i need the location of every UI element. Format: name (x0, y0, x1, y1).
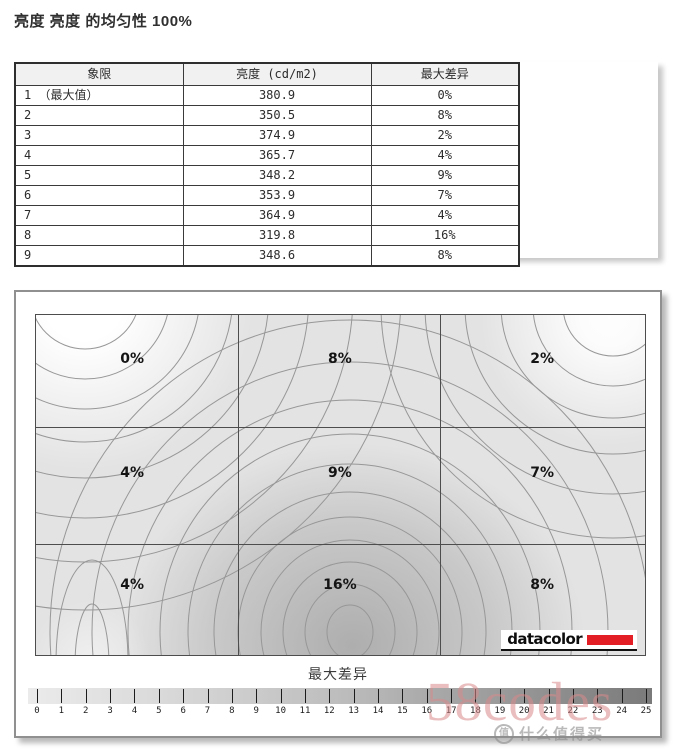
quadrant-cell: 9 (15, 246, 183, 267)
colorbar-tick-label: 24 (616, 706, 627, 716)
colorbar-tick-label: 16 (421, 706, 432, 716)
cell-value-label: 0% (120, 351, 144, 367)
table-row: 5348.29% (15, 166, 519, 186)
colorbar-tick-label: 7 (205, 706, 210, 716)
colorbar-tick (500, 689, 501, 703)
table-panel: 象限亮度 (cd/m2)最大差异 1 （最大值）380.90%2350.58%3… (14, 62, 658, 258)
quadrant-cell: 8 (15, 226, 183, 246)
colorbar-tick (475, 689, 476, 703)
table-row: 3374.92% (15, 126, 519, 146)
colorbar-tick-label: 3 (107, 706, 112, 716)
colorbar-tick (354, 689, 355, 703)
colorbar-tick (597, 689, 598, 703)
difference-cell: 16% (371, 226, 519, 246)
colorbar-tick (183, 689, 184, 703)
cell-value-label: 2% (530, 351, 554, 367)
colorbar-tick-label: 0 (34, 706, 39, 716)
quadrant-cell: 6 (15, 186, 183, 206)
colorbar-tick-label: 4 (132, 706, 137, 716)
colorbar-tick (110, 689, 111, 703)
colorbar-labels: 0123456789101112131415161718192021222324… (28, 706, 652, 720)
datacolor-logo-red-bar (587, 635, 633, 645)
colorbar-tick (61, 689, 62, 703)
table-row: 8319.816% (15, 226, 519, 246)
column-header: 象限 (15, 63, 183, 86)
luminance-cell: 380.9 (183, 86, 371, 106)
colorbar-tick-label: 1 (59, 706, 64, 716)
colorbar-tick (402, 689, 403, 703)
colorbar-tick-label: 5 (156, 706, 161, 716)
colorbar-tick (622, 689, 623, 703)
quadrant-cell: 2 (15, 106, 183, 126)
colorbar-tick (134, 689, 135, 703)
colorbar-tick (159, 689, 160, 703)
luminance-cell: 319.8 (183, 226, 371, 246)
luminance-cell: 365.7 (183, 146, 371, 166)
colorbar-tick-label: 18 (470, 706, 481, 716)
table-row: 4365.74% (15, 146, 519, 166)
colorbar-tick (378, 689, 379, 703)
quadrant-cell: 4 (15, 146, 183, 166)
luminance-cell: 348.2 (183, 166, 371, 186)
colorbar-tick-label: 17 (446, 706, 457, 716)
page-title: 亮度 亮度 的均匀性 100% (14, 10, 192, 31)
table-header-row: 象限亮度 (cd/m2)最大差异 (15, 63, 519, 86)
colorbar-tick-label: 22 (567, 706, 578, 716)
cell-value-label: 8% (328, 351, 352, 367)
luminance-cell: 364.9 (183, 206, 371, 226)
cell-value-label: 4% (120, 577, 144, 593)
colorbar-tick (208, 689, 209, 703)
cell-value-label: 4% (120, 465, 144, 481)
difference-cell: 9% (371, 166, 519, 186)
difference-cell: 4% (371, 206, 519, 226)
luminance-cell: 374.9 (183, 126, 371, 146)
table-row: 2350.58% (15, 106, 519, 126)
difference-cell: 2% (371, 126, 519, 146)
chart-box: datacolor 0%8%2%4%9%7%4%16%8% 最大差异 01234… (14, 290, 662, 738)
luminance-cell: 348.6 (183, 246, 371, 267)
difference-cell: 8% (371, 246, 519, 267)
table-row: 6353.97% (15, 186, 519, 206)
column-header: 最大差异 (371, 63, 519, 86)
colorbar-tick-label: 6 (180, 706, 185, 716)
quadrant-cell: 1 （最大值） (15, 86, 183, 106)
colorbar-title: 最大差异 (16, 664, 660, 684)
luminance-cell: 350.5 (183, 106, 371, 126)
table-row: 7364.94% (15, 206, 519, 226)
contour-rings-top-right (381, 314, 646, 538)
colorbar (28, 688, 652, 704)
cell-value-label: 9% (328, 465, 352, 481)
datacolor-logo-text: datacolor (507, 632, 582, 647)
colorbar-tick (86, 689, 87, 703)
colorbar-tick-label: 19 (494, 706, 505, 716)
colorbar-tick-label: 23 (592, 706, 603, 716)
colorbar-tick (305, 689, 306, 703)
colorbar-tick-label: 15 (397, 706, 408, 716)
colorbar-tick-label: 11 (300, 706, 311, 716)
quadrant-cell: 7 (15, 206, 183, 226)
colorbar-tick (427, 689, 428, 703)
cell-value-label: 8% (530, 577, 554, 593)
colorbar-tick-label: 25 (641, 706, 652, 716)
colorbar-tick (524, 689, 525, 703)
cell-value-label: 16% (323, 577, 357, 593)
difference-cell: 7% (371, 186, 519, 206)
datacolor-logo: datacolor (501, 630, 637, 651)
luminance-cell: 353.9 (183, 186, 371, 206)
colorbar-tick-label: 12 (324, 706, 335, 716)
colorbar-tick-label: 20 (519, 706, 530, 716)
difference-cell: 0% (371, 86, 519, 106)
difference-cell: 8% (371, 106, 519, 126)
uniformity-table: 象限亮度 (cd/m2)最大差异 1 （最大值）380.90%2350.58%3… (14, 62, 520, 267)
colorbar-tick (329, 689, 330, 703)
colorbar-tick (37, 689, 38, 703)
colorbar-tick-label: 14 (373, 706, 384, 716)
colorbar-tick (573, 689, 574, 703)
table-row: 9348.68% (15, 246, 519, 267)
colorbar-tick-label: 21 (543, 706, 554, 716)
colorbar-tick (549, 689, 550, 703)
table-body: 1 （最大值）380.90%2350.58%3374.92%4365.74%53… (15, 86, 519, 267)
colorbar-tick (281, 689, 282, 703)
cell-value-label: 7% (530, 465, 554, 481)
quadrant-cell: 3 (15, 126, 183, 146)
quadrant-cell: 5 (15, 166, 183, 186)
colorbar-tick-label: 10 (275, 706, 286, 716)
column-header: 亮度 (cd/m2) (183, 63, 371, 86)
difference-cell: 4% (371, 146, 519, 166)
colorbar-tick (451, 689, 452, 703)
contour-plot: datacolor 0%8%2%4%9%7%4%16%8% (35, 314, 646, 656)
colorbar-tick-label: 13 (348, 706, 359, 716)
colorbar-tick (232, 689, 233, 703)
colorbar-tick-label: 8 (229, 706, 234, 716)
colorbar-tick (256, 689, 257, 703)
colorbar-tick-label: 9 (254, 706, 259, 716)
colorbar-tick (646, 689, 647, 703)
table-row: 1 （最大值）380.90% (15, 86, 519, 106)
colorbar-tick-label: 2 (83, 706, 88, 716)
